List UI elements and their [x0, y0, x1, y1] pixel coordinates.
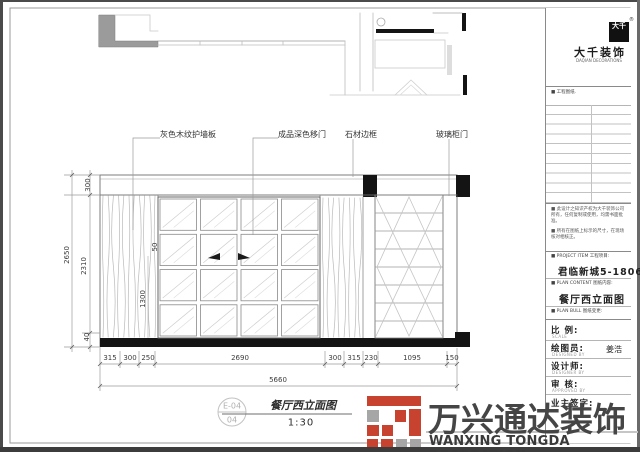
note-site-check: ■ 所有在图纸上标示的尺寸，在现场核对相核正。	[551, 229, 625, 241]
watermark: 万兴通达装饰 WANXING TONGDA DECORATION	[364, 393, 640, 452]
leader-lines	[133, 138, 449, 235]
field-designer-sub: DESIGNER BY	[552, 370, 584, 375]
content-value: 餐厅西立面图	[559, 291, 625, 306]
dim-bottom-4: 300	[328, 354, 341, 362]
field-drafter-value: 姜浩	[606, 344, 622, 355]
sheet-label: ■ 工程图纸.	[551, 90, 576, 96]
plan-circle-marker	[377, 18, 385, 26]
brand-sub: DAQIAN DECORATIONS	[576, 58, 622, 63]
callout-sliding-door: 成品深色移门	[278, 129, 326, 140]
callout-wall-panel: 灰色木纹护墙板	[160, 129, 216, 140]
drawing-title: 餐厅西立面图	[270, 397, 336, 413]
dim-bottom-3: 2690	[231, 354, 249, 362]
dim-left-inner: 2310	[80, 257, 88, 275]
field-scale-sub: SCALE	[552, 334, 567, 339]
dim-bottom-8: 150	[445, 354, 458, 362]
stone-frame-block-left	[363, 175, 377, 197]
note-copyright: ■ 此设计之知识产权为大千装饰公司所有，任何复制或使用，均需书面批准。	[551, 207, 625, 225]
glass-cabinet	[375, 195, 443, 338]
dim-left-band: 300	[84, 178, 92, 191]
dim-internal-height: 1300	[139, 290, 147, 308]
plan-wall-corner	[99, 15, 158, 47]
dim-left-base: 40	[83, 333, 91, 342]
project-value: 君临新城5-1806	[558, 264, 640, 278]
bubble-code: E-04	[223, 402, 241, 411]
project-label: ■ PROJECT ITEM 工程项目:	[551, 254, 609, 260]
content-label: ■ PLAN CONTENT 图纸内容:	[551, 281, 613, 287]
stone-frame-block-right	[456, 175, 470, 197]
baseboard	[100, 338, 456, 347]
plan-view	[99, 13, 467, 95]
drawing-scale: 1:30	[288, 418, 314, 429]
revision-table	[546, 105, 631, 203]
drawing-sheet: 灰色木纹护墙板 成品深色移门 石材边框 玻璃柜门 300 2650 2310 4…	[0, 0, 640, 452]
plan-wall-block-bottom	[463, 75, 467, 95]
dim-bottom-7: 1095	[403, 354, 421, 362]
plan-chevron	[395, 80, 427, 95]
baseboard-end-block	[455, 332, 470, 347]
dim-internal-gap: 50	[151, 243, 159, 252]
revision-table-divider	[591, 105, 592, 203]
callout-glass-cabinet: 玻璃柜门	[436, 129, 468, 140]
dim-left-overall: 2650	[63, 246, 71, 264]
dim-total: 5660	[269, 376, 287, 384]
elevation	[100, 175, 470, 347]
dim-bottom-6: 230	[364, 354, 377, 362]
dim-bottom-1: 300	[123, 354, 136, 362]
watermark-en: WANXING TONGDA DECORATION	[429, 434, 640, 452]
title-block: 大千 ® 大千装饰 DAQIAN DECORATIONS ■ 工程图纸. ■ 此…	[545, 8, 631, 443]
cad-linework	[0, 0, 640, 452]
plan-wall-block-top	[462, 13, 466, 31]
plan-dim-strip	[447, 45, 452, 75]
dim-bottom-5: 315	[347, 354, 360, 362]
registered-mark: ®	[629, 17, 634, 23]
wood-grain-right	[322, 198, 362, 337]
dim-bottom-0: 315	[103, 354, 116, 362]
callout-stone-frame: 石材边框	[345, 129, 377, 140]
plan-section-bar	[376, 29, 434, 33]
sliding-door-grid	[160, 199, 318, 336]
bubble-sheet: 04	[227, 416, 237, 425]
brand-seal: 大千	[609, 22, 629, 42]
field-drafter-sub: DESIGNED BY	[552, 352, 585, 357]
bull-label: ■ PLAN BULL 图纸变更:	[551, 309, 602, 315]
dim-bottom-2: 250	[141, 354, 154, 362]
